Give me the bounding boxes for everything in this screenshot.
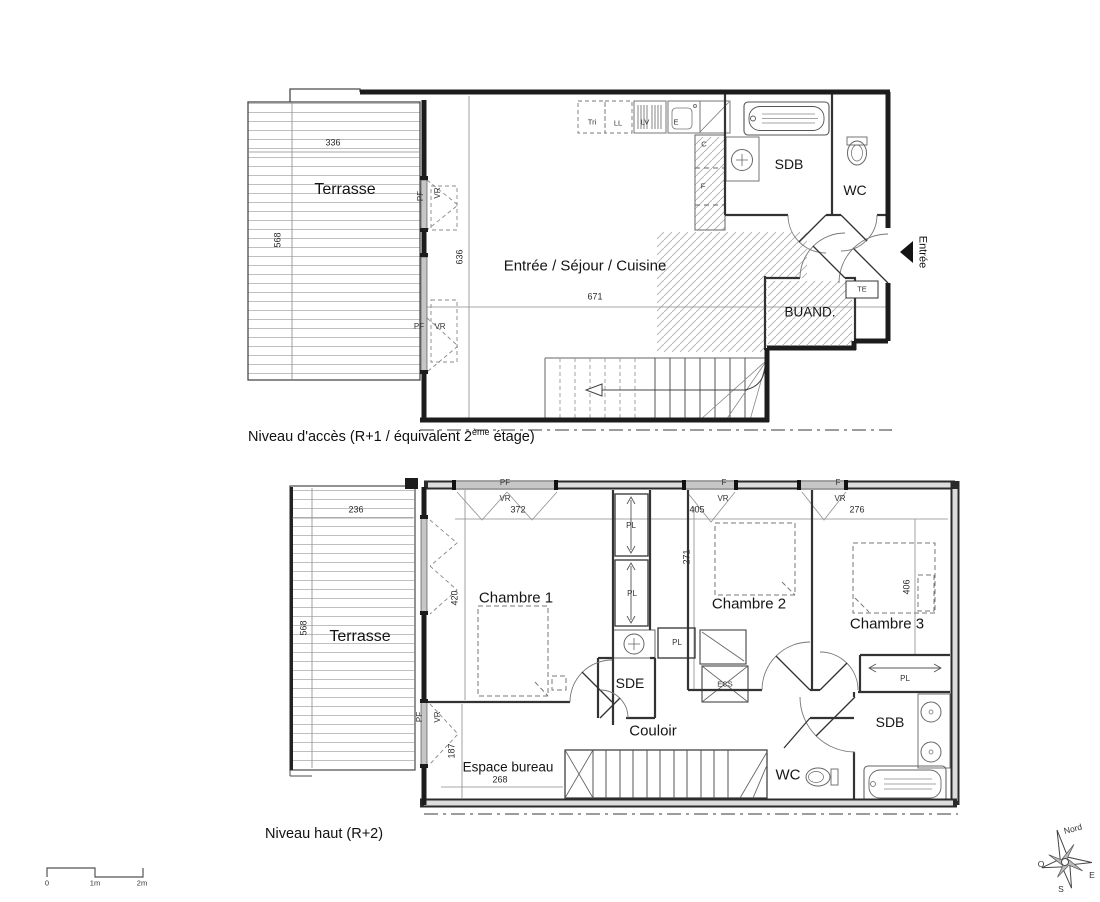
bedroom3-height-dim: 406 xyxy=(903,579,912,594)
living-width-dim: 671 xyxy=(587,293,602,302)
bedroom1-window-vr-tag: VR xyxy=(499,495,510,503)
lower-caption-text: Niveau haut (R+2) xyxy=(265,826,383,842)
upper-window2-vr-tag: VR xyxy=(434,323,445,331)
upper-plan-caption: Niveau d'accès (R+1 / équivalent 2ème ét… xyxy=(248,427,535,445)
upper-window1-pf-tag: PF xyxy=(417,191,425,201)
scale-2m-label: 2m xyxy=(137,879,147,887)
upper-caption-post: étage) xyxy=(490,429,535,445)
bedroom2-width-dim: 405 xyxy=(689,506,704,515)
washing-machine-tag: LL xyxy=(614,119,622,127)
office-height-dim: 187 xyxy=(448,743,457,758)
lower-plan-caption: Niveau haut (R+2) xyxy=(265,826,383,842)
bedroom2-label: Chambre 2 xyxy=(712,597,786,612)
compass-south-label: S xyxy=(1058,885,1064,894)
lower-terrace-height-dim: 568 xyxy=(300,620,309,635)
bedroom3-window-f-tag: F xyxy=(836,479,841,487)
waste-sorting-tag: Tri xyxy=(588,118,596,126)
bedroom1-label: Chambre 1 xyxy=(479,591,553,606)
corridor-label: Couloir xyxy=(629,724,677,739)
upper-caption-pre: Niveau d'accès (R+1 / équivalent 2 xyxy=(248,429,472,445)
upper-wc-label: WC xyxy=(843,183,866,197)
bedroom1-width-dim: 372 xyxy=(510,506,525,515)
lower-terrace-label: Terrasse xyxy=(329,629,390,645)
office-label: Espace bureau xyxy=(463,760,554,774)
bedroom3-width-dim: 276 xyxy=(849,506,864,515)
scale-zero-label: 0 xyxy=(45,879,49,887)
bedroom3-label: Chambre 3 xyxy=(850,617,924,632)
upper-terrace-label: Terrasse xyxy=(314,182,375,198)
compass-east-label: E xyxy=(1089,871,1095,880)
compass-north-label: Nord xyxy=(1063,823,1083,836)
office-window-pf-tag: PF xyxy=(416,712,424,722)
shower-room-label: SDE xyxy=(616,676,645,690)
scale-1m-label: 1m xyxy=(90,879,100,887)
closet2-tag: PL xyxy=(627,590,637,598)
living-height-dim: 636 xyxy=(456,249,465,264)
bedroom2-window-vr-tag: VR xyxy=(717,495,728,503)
office-window-vr-tag: VR xyxy=(434,711,442,722)
lower-wc-label: WC xyxy=(776,768,801,783)
bedroom3-window-vr-tag: VR xyxy=(834,495,845,503)
lower-bathroom-label: SDB xyxy=(876,715,905,729)
electrical-panel-tag: TE xyxy=(857,285,867,293)
bedroom1-height-dim: 420 xyxy=(451,590,460,605)
office-width-dim: 268 xyxy=(492,776,507,785)
upper-terrace-width-dim: 336 xyxy=(325,139,340,148)
water-heater-tag: ECS xyxy=(717,680,732,688)
lower-terrace-width-dim: 236 xyxy=(348,506,363,515)
closet1-tag: PL xyxy=(626,522,636,530)
dishwasher-tag: LV xyxy=(641,118,650,126)
upper-window1-vr-tag: VR xyxy=(434,187,442,198)
labels-overlay: Terrasse 336 568 Entrée / Séjour / Cuisi… xyxy=(0,0,1100,902)
upper-caption-sup: ème xyxy=(472,427,490,437)
closet4-tag: PL xyxy=(900,675,910,683)
living-room-label: Entrée / Séjour / Cuisine xyxy=(504,259,667,274)
upper-bathroom-label: SDB xyxy=(775,157,804,171)
upper-terrace-height-dim: 568 xyxy=(274,232,283,247)
entrance-label: Entrée xyxy=(917,236,928,268)
laundry-label: BUAND. xyxy=(784,305,835,319)
bedroom2-height-dim: 271 xyxy=(683,549,692,564)
column-c-tag: C xyxy=(701,140,706,148)
compass-west-label: O xyxy=(1038,860,1045,869)
floor-plan-page: Terrasse 336 568 Entrée / Séjour / Cuisi… xyxy=(0,0,1100,902)
closet3-tag: PL xyxy=(672,639,682,647)
bedroom2-window-f-tag: F xyxy=(722,479,727,487)
upper-window2-pf-tag: PF xyxy=(414,323,424,331)
sink-tag: E xyxy=(673,118,678,126)
bedroom1-window-pf-tag: PF xyxy=(500,479,510,487)
column-f-tag: F xyxy=(701,182,706,190)
